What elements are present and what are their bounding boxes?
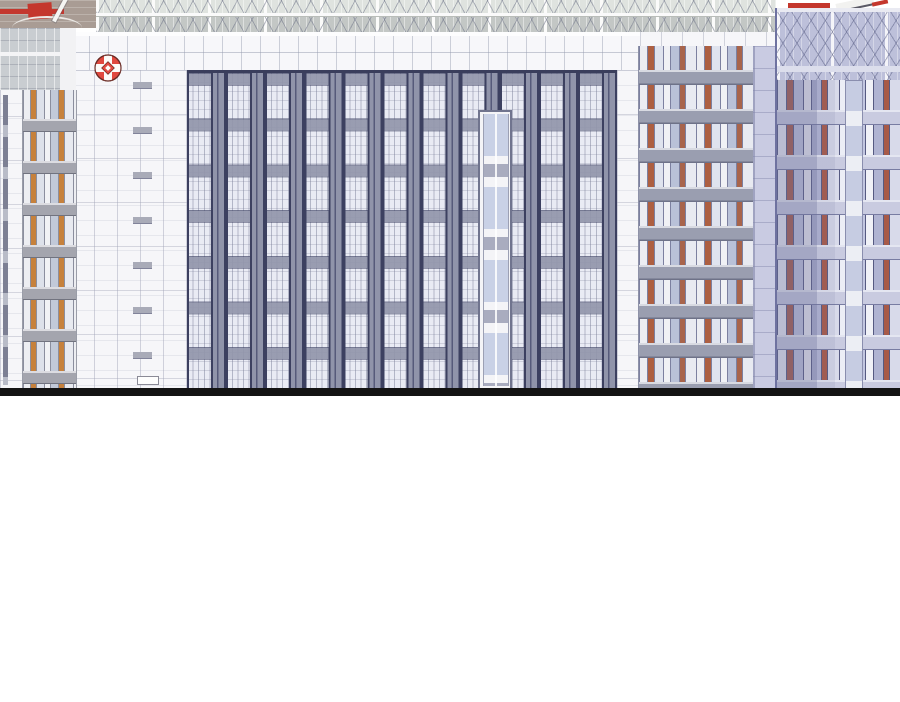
ground-line (0, 388, 900, 396)
hospital-logo-icon (93, 53, 123, 83)
farright-truss-band (775, 8, 900, 80)
farright-red-tip (872, 0, 888, 7)
core-windows (483, 114, 509, 386)
parapet-band (70, 32, 640, 71)
wall-tick-column (133, 82, 152, 388)
left-grid-dark-strip (3, 95, 8, 385)
truss-band-lower (96, 17, 776, 32)
right-frame-wall (617, 70, 638, 390)
webtoon-panel (0, 0, 900, 702)
elevator-core-column (478, 110, 512, 390)
farright-building (775, 0, 900, 390)
farright-core-column (845, 80, 863, 390)
blank-gutter (0, 396, 900, 702)
logo-wall (70, 70, 188, 390)
lavender-pilaster (753, 46, 775, 390)
curtain-wall-facade (187, 70, 617, 393)
entrance-detail (137, 376, 159, 385)
orange-tower (638, 46, 755, 390)
left-glass-band (0, 28, 76, 90)
left-balcony-tower (22, 90, 77, 390)
building-scene (0, 0, 900, 396)
rooftop-ramp-curve (12, 16, 82, 28)
rooftop-deck (0, 0, 96, 28)
farright-facade (775, 80, 900, 390)
truss-band-upper (96, 0, 776, 13)
